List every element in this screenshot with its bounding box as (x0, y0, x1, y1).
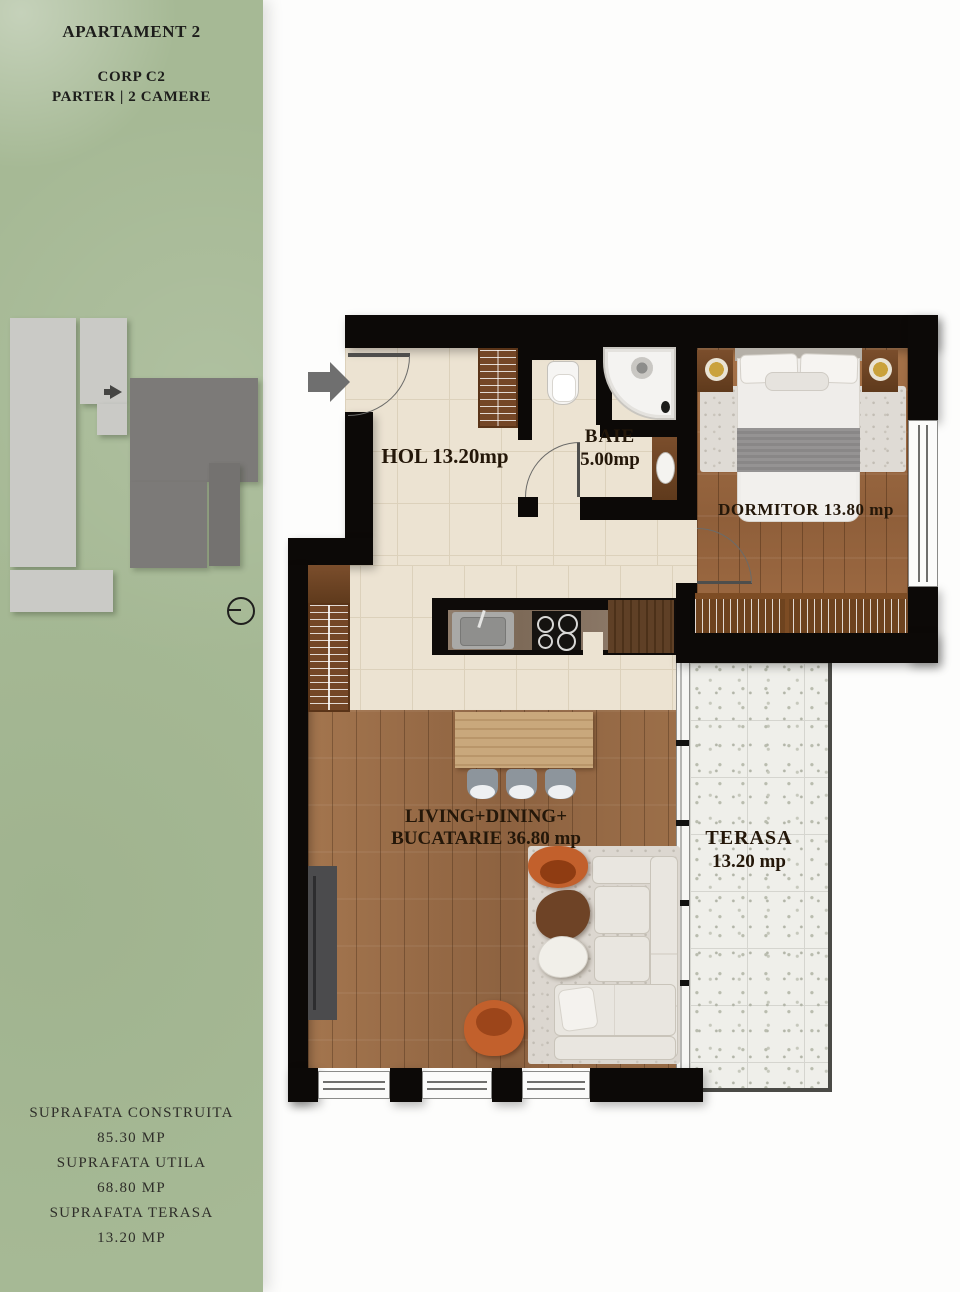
chair-seat (509, 785, 534, 799)
terasa-area-label: 13.20 mp (690, 851, 808, 873)
burner-3 (538, 634, 553, 649)
sofa-back-bottom (554, 1036, 676, 1060)
burner-2 (558, 614, 578, 634)
dining-chair-2 (506, 769, 537, 799)
wall-bottom-2 (390, 1068, 422, 1102)
wall-baie-left (518, 347, 532, 440)
hol-label: HOL 13.20mp (355, 444, 535, 468)
dining-chair-3 (545, 769, 576, 799)
wall-left-step (288, 538, 373, 565)
bed-blanket (737, 428, 860, 472)
wall-right-upper (908, 315, 938, 420)
bedroom-window (908, 420, 938, 587)
floor-plan: HOL 13.20mp BAIE 5.00mp DORMITOR 13.80 m… (0, 0, 960, 1292)
sink-basin (656, 452, 675, 484)
dining-table (455, 712, 593, 768)
toilet-seat (552, 374, 576, 402)
burner-4 (557, 632, 576, 651)
bed (735, 348, 862, 522)
living-label-line2: BUCATARIE 36.80 mp (386, 828, 586, 850)
wall-toilet-stub (532, 347, 596, 360)
glass-mullion-icon (680, 663, 682, 1068)
cooktop (532, 611, 581, 650)
lamp-left-icon (705, 358, 728, 381)
entrance-arrow-icon (308, 372, 330, 392)
wall-left-lower (288, 565, 308, 1102)
kitchen-tall-cabinet (608, 600, 674, 653)
living-window-3 (522, 1071, 590, 1099)
wall-mid-lower (676, 583, 697, 633)
chair-seat (470, 785, 495, 799)
wall-bottom-4 (590, 1068, 703, 1102)
baie-area-label: 5.00mp (565, 449, 655, 471)
burner-1 (537, 616, 554, 633)
shower-drain-icon (661, 401, 670, 413)
living-label-line1: LIVING+DINING+ (386, 806, 586, 828)
sofa-seat-2 (594, 936, 650, 982)
armchair-top (528, 846, 588, 888)
tv-console (308, 866, 337, 1020)
baie-name-label: BAIE (570, 426, 650, 448)
lamp-right-icon (869, 358, 892, 381)
sofa-seat-1 (594, 886, 650, 934)
sink-vanity (652, 437, 677, 500)
wall-bottom-3 (492, 1068, 522, 1102)
bed-pillow-small (765, 372, 829, 391)
left-wardrobe (308, 603, 350, 712)
dining-chair-1 (467, 769, 498, 799)
wall-baie-corner (518, 497, 538, 517)
living-window-2 (422, 1071, 492, 1099)
wall-mid-upper (676, 347, 697, 520)
glass-tick-2 (676, 820, 689, 826)
hol-wardrobe (478, 348, 518, 428)
dormitor-label: DORMITOR 13.80 mp (706, 500, 906, 520)
tv-screen (313, 876, 316, 1010)
wall-baie-bottom (580, 497, 677, 520)
wardrobe-divider (785, 599, 789, 633)
sink-bowl (460, 617, 506, 646)
bedroom-wardrobe (695, 593, 907, 633)
glass-tick-1 (676, 740, 689, 746)
armchair-bottom (464, 1000, 524, 1056)
wall-bedroom-terrace (676, 633, 938, 663)
wall-top (345, 315, 938, 348)
floorplan-page: APARTAMENT 2 CORP C2 PARTER | 2 CAMERE S… (0, 0, 960, 1292)
kitchen-sink (452, 612, 514, 649)
chair-seat (548, 785, 573, 799)
armchair-seat (540, 860, 576, 884)
left-wardrobe-top (308, 565, 350, 603)
wall-left-upper (345, 412, 373, 538)
terasa-name-label: TERASA (690, 827, 808, 850)
kitchen-notch (583, 632, 603, 655)
living-window-1 (318, 1071, 390, 1099)
toilet (547, 361, 579, 405)
shower-head-icon (631, 357, 653, 379)
sofa-pillow (557, 986, 598, 1033)
entrance-arrow-tip-icon (330, 362, 350, 402)
wall-bottom-1 (288, 1068, 318, 1102)
armchair-seat (476, 1008, 512, 1036)
terrace-floor (690, 663, 832, 1092)
